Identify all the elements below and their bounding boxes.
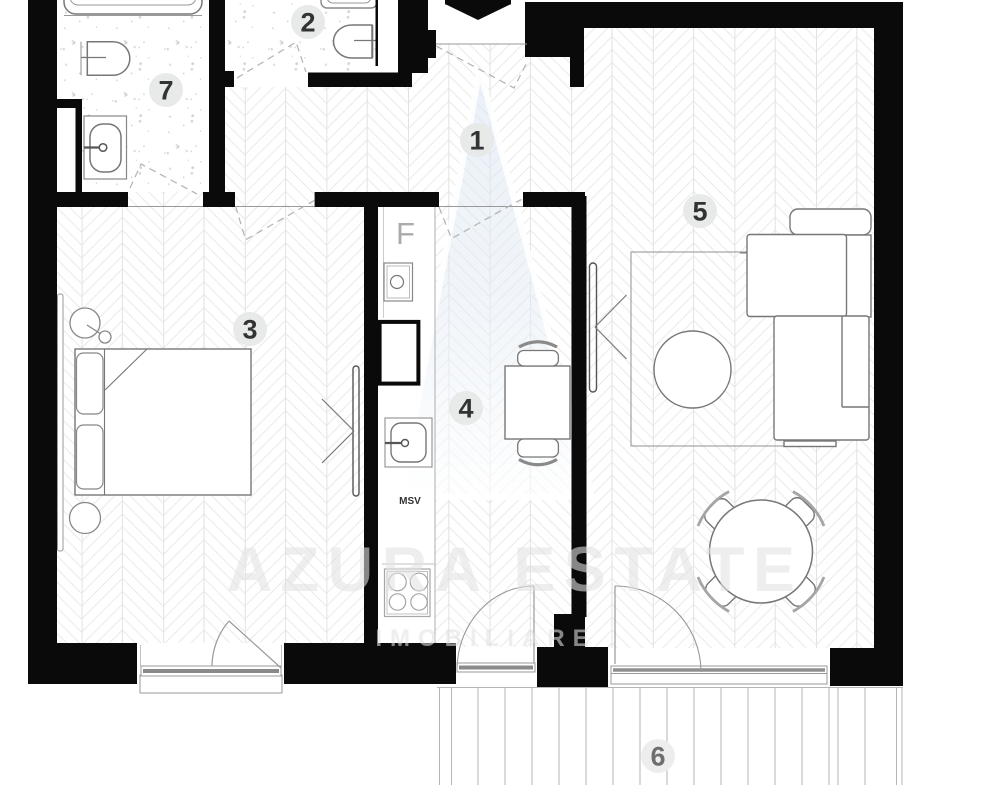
svg-text:AZURA ESTATE: AZURA ESTATE bbox=[227, 535, 804, 605]
svg-text:2: 2 bbox=[300, 8, 315, 38]
svg-text:F: F bbox=[396, 216, 415, 251]
svg-text:MSV: MSV bbox=[399, 496, 421, 507]
svg-text:3: 3 bbox=[242, 315, 257, 345]
svg-text:6: 6 bbox=[650, 742, 665, 772]
svg-text:7: 7 bbox=[158, 76, 173, 106]
svg-text:IMOBILIARE: IMOBILIARE bbox=[375, 625, 596, 652]
svg-text:1: 1 bbox=[469, 126, 484, 156]
svg-text:4: 4 bbox=[458, 394, 473, 424]
svg-text:5: 5 bbox=[692, 197, 707, 227]
